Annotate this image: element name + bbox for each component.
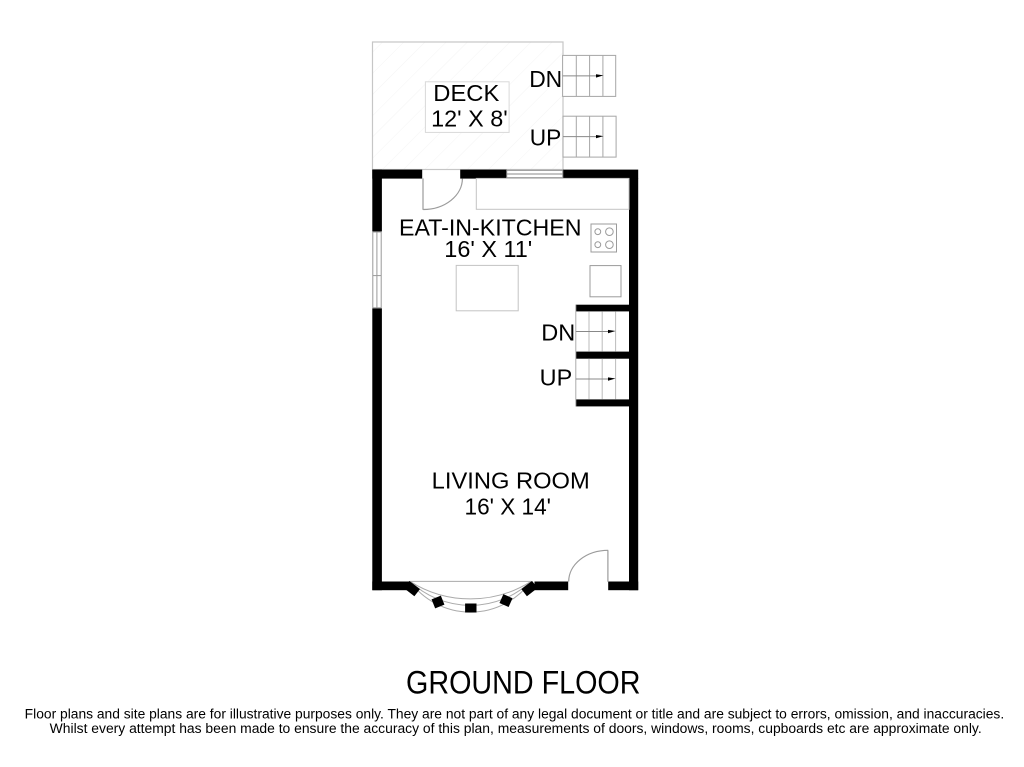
svg-text:GROUND FLOOR: GROUND FLOOR xyxy=(406,665,641,701)
svg-text:16' X 11': 16' X 11' xyxy=(444,236,532,262)
svg-text:UP: UP xyxy=(530,124,562,150)
svg-text:DN: DN xyxy=(529,66,562,92)
svg-text:Floor plans and site plans are: Floor plans and site plans are for illus… xyxy=(25,707,1005,722)
svg-text:UP: UP xyxy=(540,365,573,391)
svg-text:16' X 14': 16' X 14' xyxy=(465,494,552,520)
svg-text:12' X 8': 12' X 8' xyxy=(431,105,508,131)
svg-text:LIVING ROOM: LIVING ROOM xyxy=(432,467,590,493)
svg-text:DECK: DECK xyxy=(433,80,500,106)
svg-text:DN: DN xyxy=(541,319,575,345)
svg-text:Whilst every attempt has been: Whilst every attempt has been made to en… xyxy=(50,721,982,736)
